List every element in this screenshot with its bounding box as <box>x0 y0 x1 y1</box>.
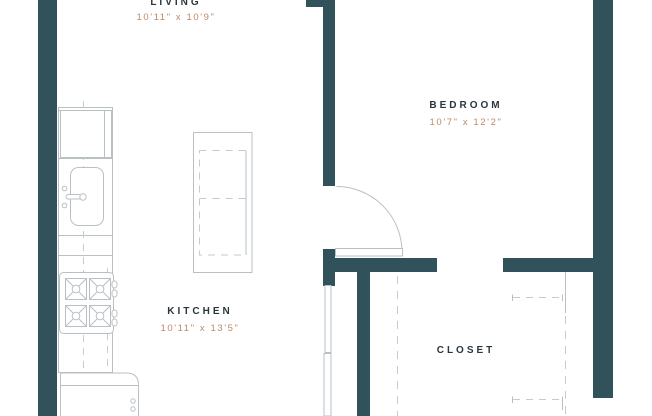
kitchen-label: KITCHEN <box>167 306 232 317</box>
door-swing <box>336 187 403 257</box>
closet-label: CLOSET <box>437 345 496 356</box>
living-room-label: LIVING <box>150 0 201 8</box>
closet-shelving <box>398 272 566 416</box>
refrigerator <box>61 373 139 416</box>
bedroom-dims: 10'7" x 12'2" <box>430 117 503 128</box>
fixtures-layer <box>0 0 652 416</box>
kitchen-island <box>194 133 253 273</box>
living-room-dims: 10'11" x 10'9" <box>136 12 215 23</box>
thin-wall-strips <box>324 286 331 416</box>
pantry-cabinet <box>61 111 112 158</box>
bedroom-label: BEDROOM <box>429 100 502 111</box>
stove <box>60 273 118 334</box>
floor-plan: LIVING 10'11" x 10'9" BEDROOM 10'7" x 12… <box>0 0 652 416</box>
kitchen-dims: 10'11" x 13'5" <box>160 323 239 334</box>
